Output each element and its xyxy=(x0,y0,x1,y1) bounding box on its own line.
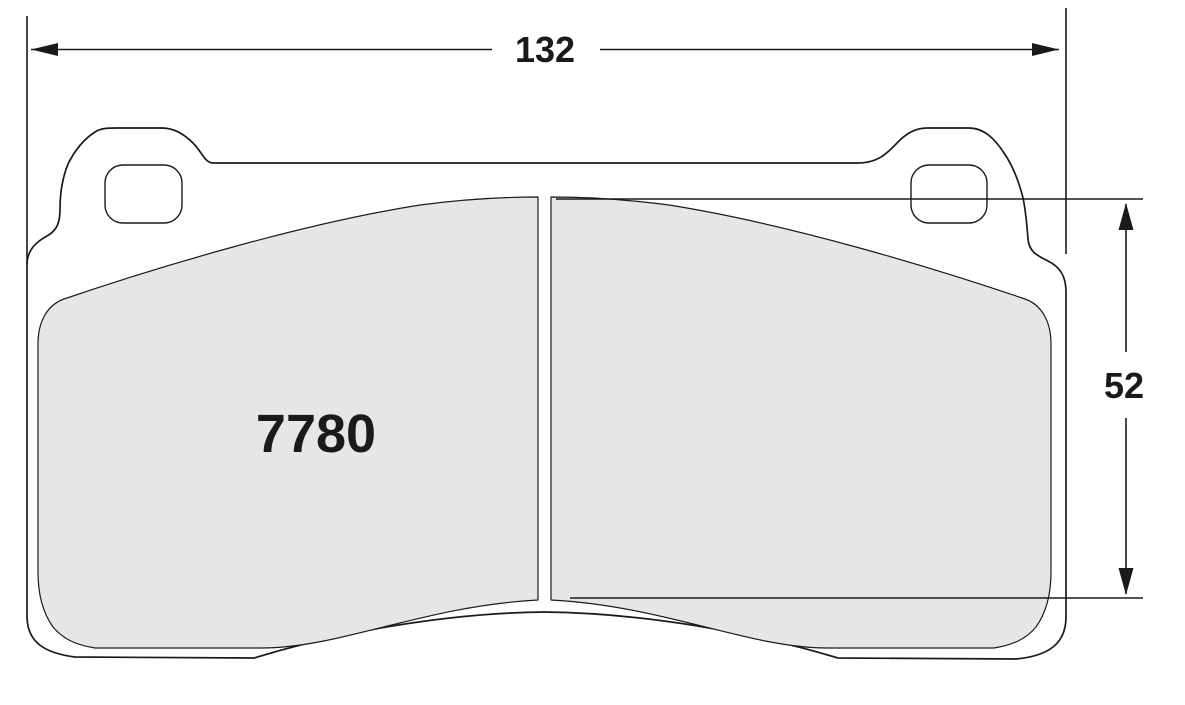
mounting-hole-left xyxy=(105,165,182,223)
arrowhead-down-icon xyxy=(1119,568,1134,595)
arrowhead-up-icon xyxy=(1119,203,1134,230)
arrowhead-right-icon xyxy=(1032,43,1059,56)
drawing-canvas: 7780 132 52 xyxy=(0,0,1185,705)
height-dimension-value: 52 xyxy=(1104,365,1144,406)
brake-pad: 7780 xyxy=(27,128,1066,659)
arrowhead-left-icon xyxy=(31,43,58,56)
brake-pad-drawing: 7780 132 52 xyxy=(0,0,1185,705)
mounting-hole-right xyxy=(911,165,987,223)
width-dimension-value: 132 xyxy=(515,29,575,70)
part-number-label: 7780 xyxy=(256,404,376,464)
